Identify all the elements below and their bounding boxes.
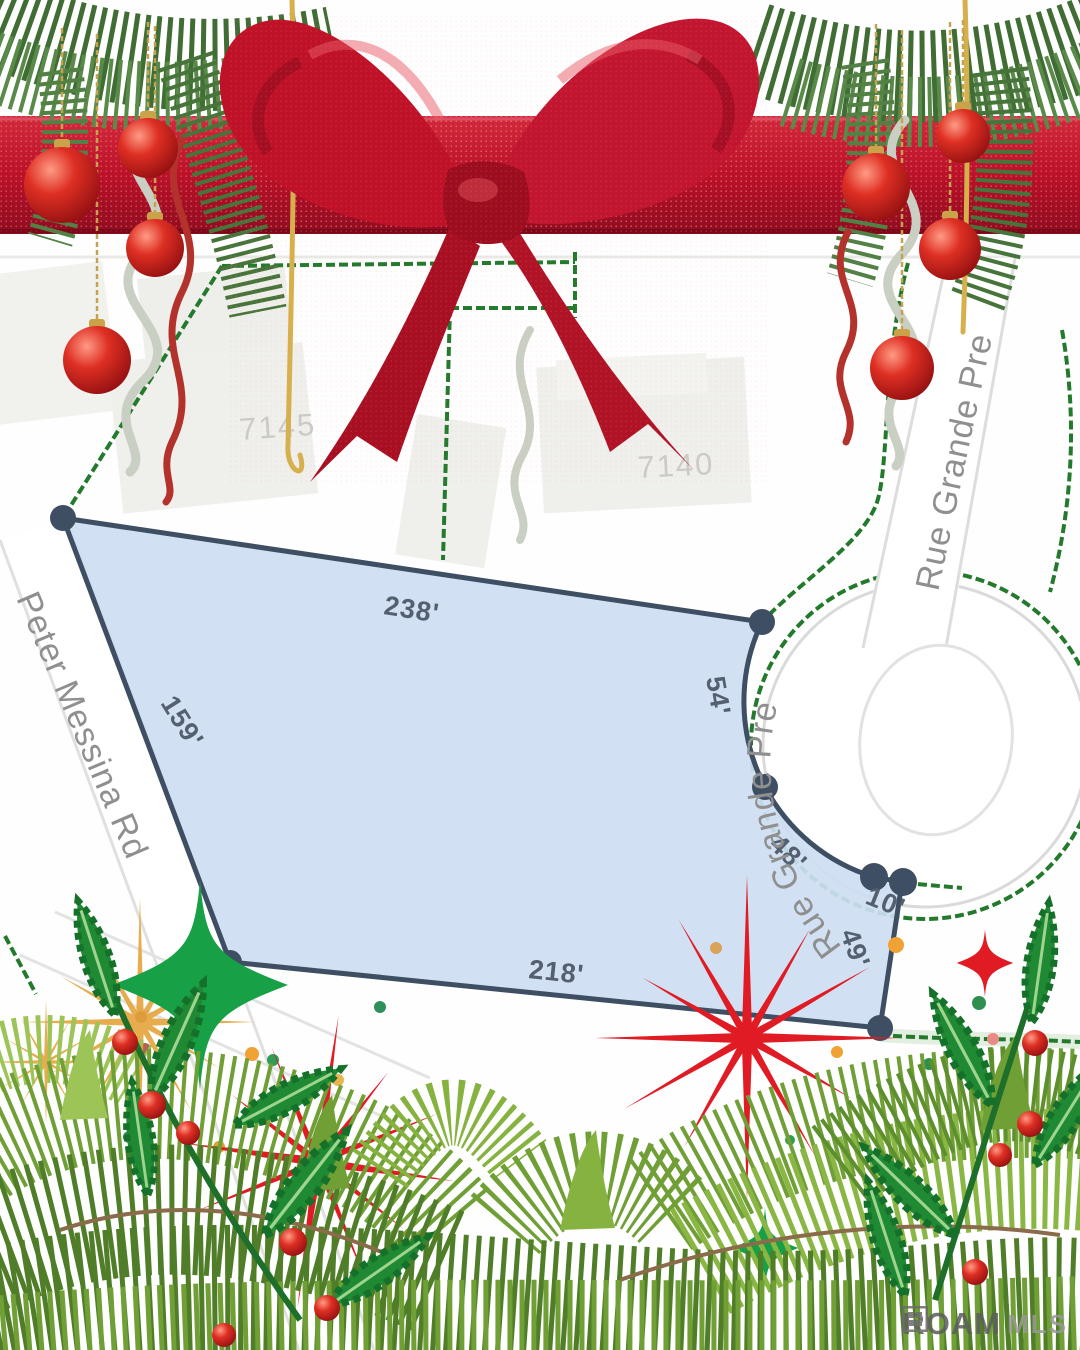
sparkle-red-star-small: [957, 929, 1013, 996]
christmas-bow-icon: [220, 14, 770, 484]
watermark-suffix: MLS: [1007, 1309, 1068, 1340]
watermark: ROAM MLS: [902, 1306, 1068, 1342]
listing-image: 7145 7140: [0, 0, 1080, 1350]
plat-map-illustration: 7145 7140: [0, 0, 1080, 1350]
roam-logo-icon: [902, 1306, 928, 1332]
dimension-bottom: 218': [527, 954, 585, 990]
